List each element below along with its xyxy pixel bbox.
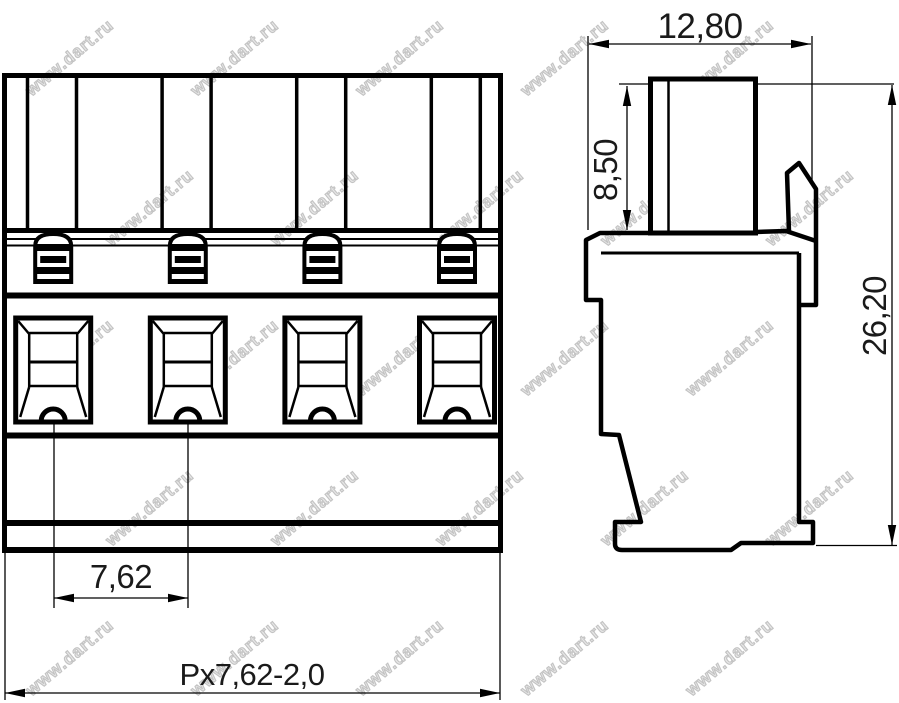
arrowhead (623, 210, 631, 230)
arrowhead (5, 689, 25, 697)
arrowhead (589, 40, 609, 48)
drawing-canvas: www.dart.ruwww.dart.ruwww.dart.ruwww.dar… (0, 0, 899, 703)
side-flange-top (755, 231, 816, 241)
arrowhead (888, 525, 896, 545)
dim-pin-height-label: 8,50 (587, 139, 624, 201)
arrowhead (54, 594, 74, 602)
dim-overall-width: Px7,62-2,0 (5, 553, 500, 700)
dim-overall-width-label: Px7,62-2,0 (180, 657, 325, 692)
side-pin (651, 79, 756, 233)
dim-pin-height: 8,50 (587, 84, 648, 230)
arrowhead (888, 85, 896, 105)
pole-4 (420, 76, 495, 422)
technical-drawing: 7,62 Px7,62-2,0 12,80 8,50 (0, 0, 899, 703)
pole-2 (150, 76, 225, 422)
arrowhead (623, 86, 631, 106)
arrowhead (791, 40, 811, 48)
dim-total-height-label: 26,20 (856, 276, 893, 356)
pole-1 (16, 76, 91, 422)
dim-pitch-label: 7,62 (90, 558, 152, 595)
front-view (2, 73, 503, 553)
pole-3 (285, 76, 360, 422)
dim-total-height: 26,20 (757, 84, 897, 546)
dim-pitch: 7,62 (54, 423, 188, 608)
arrowhead (480, 689, 500, 697)
arrowhead (168, 594, 188, 602)
side-body-outline (586, 233, 813, 550)
dim-body-width-label: 12,80 (657, 7, 742, 46)
